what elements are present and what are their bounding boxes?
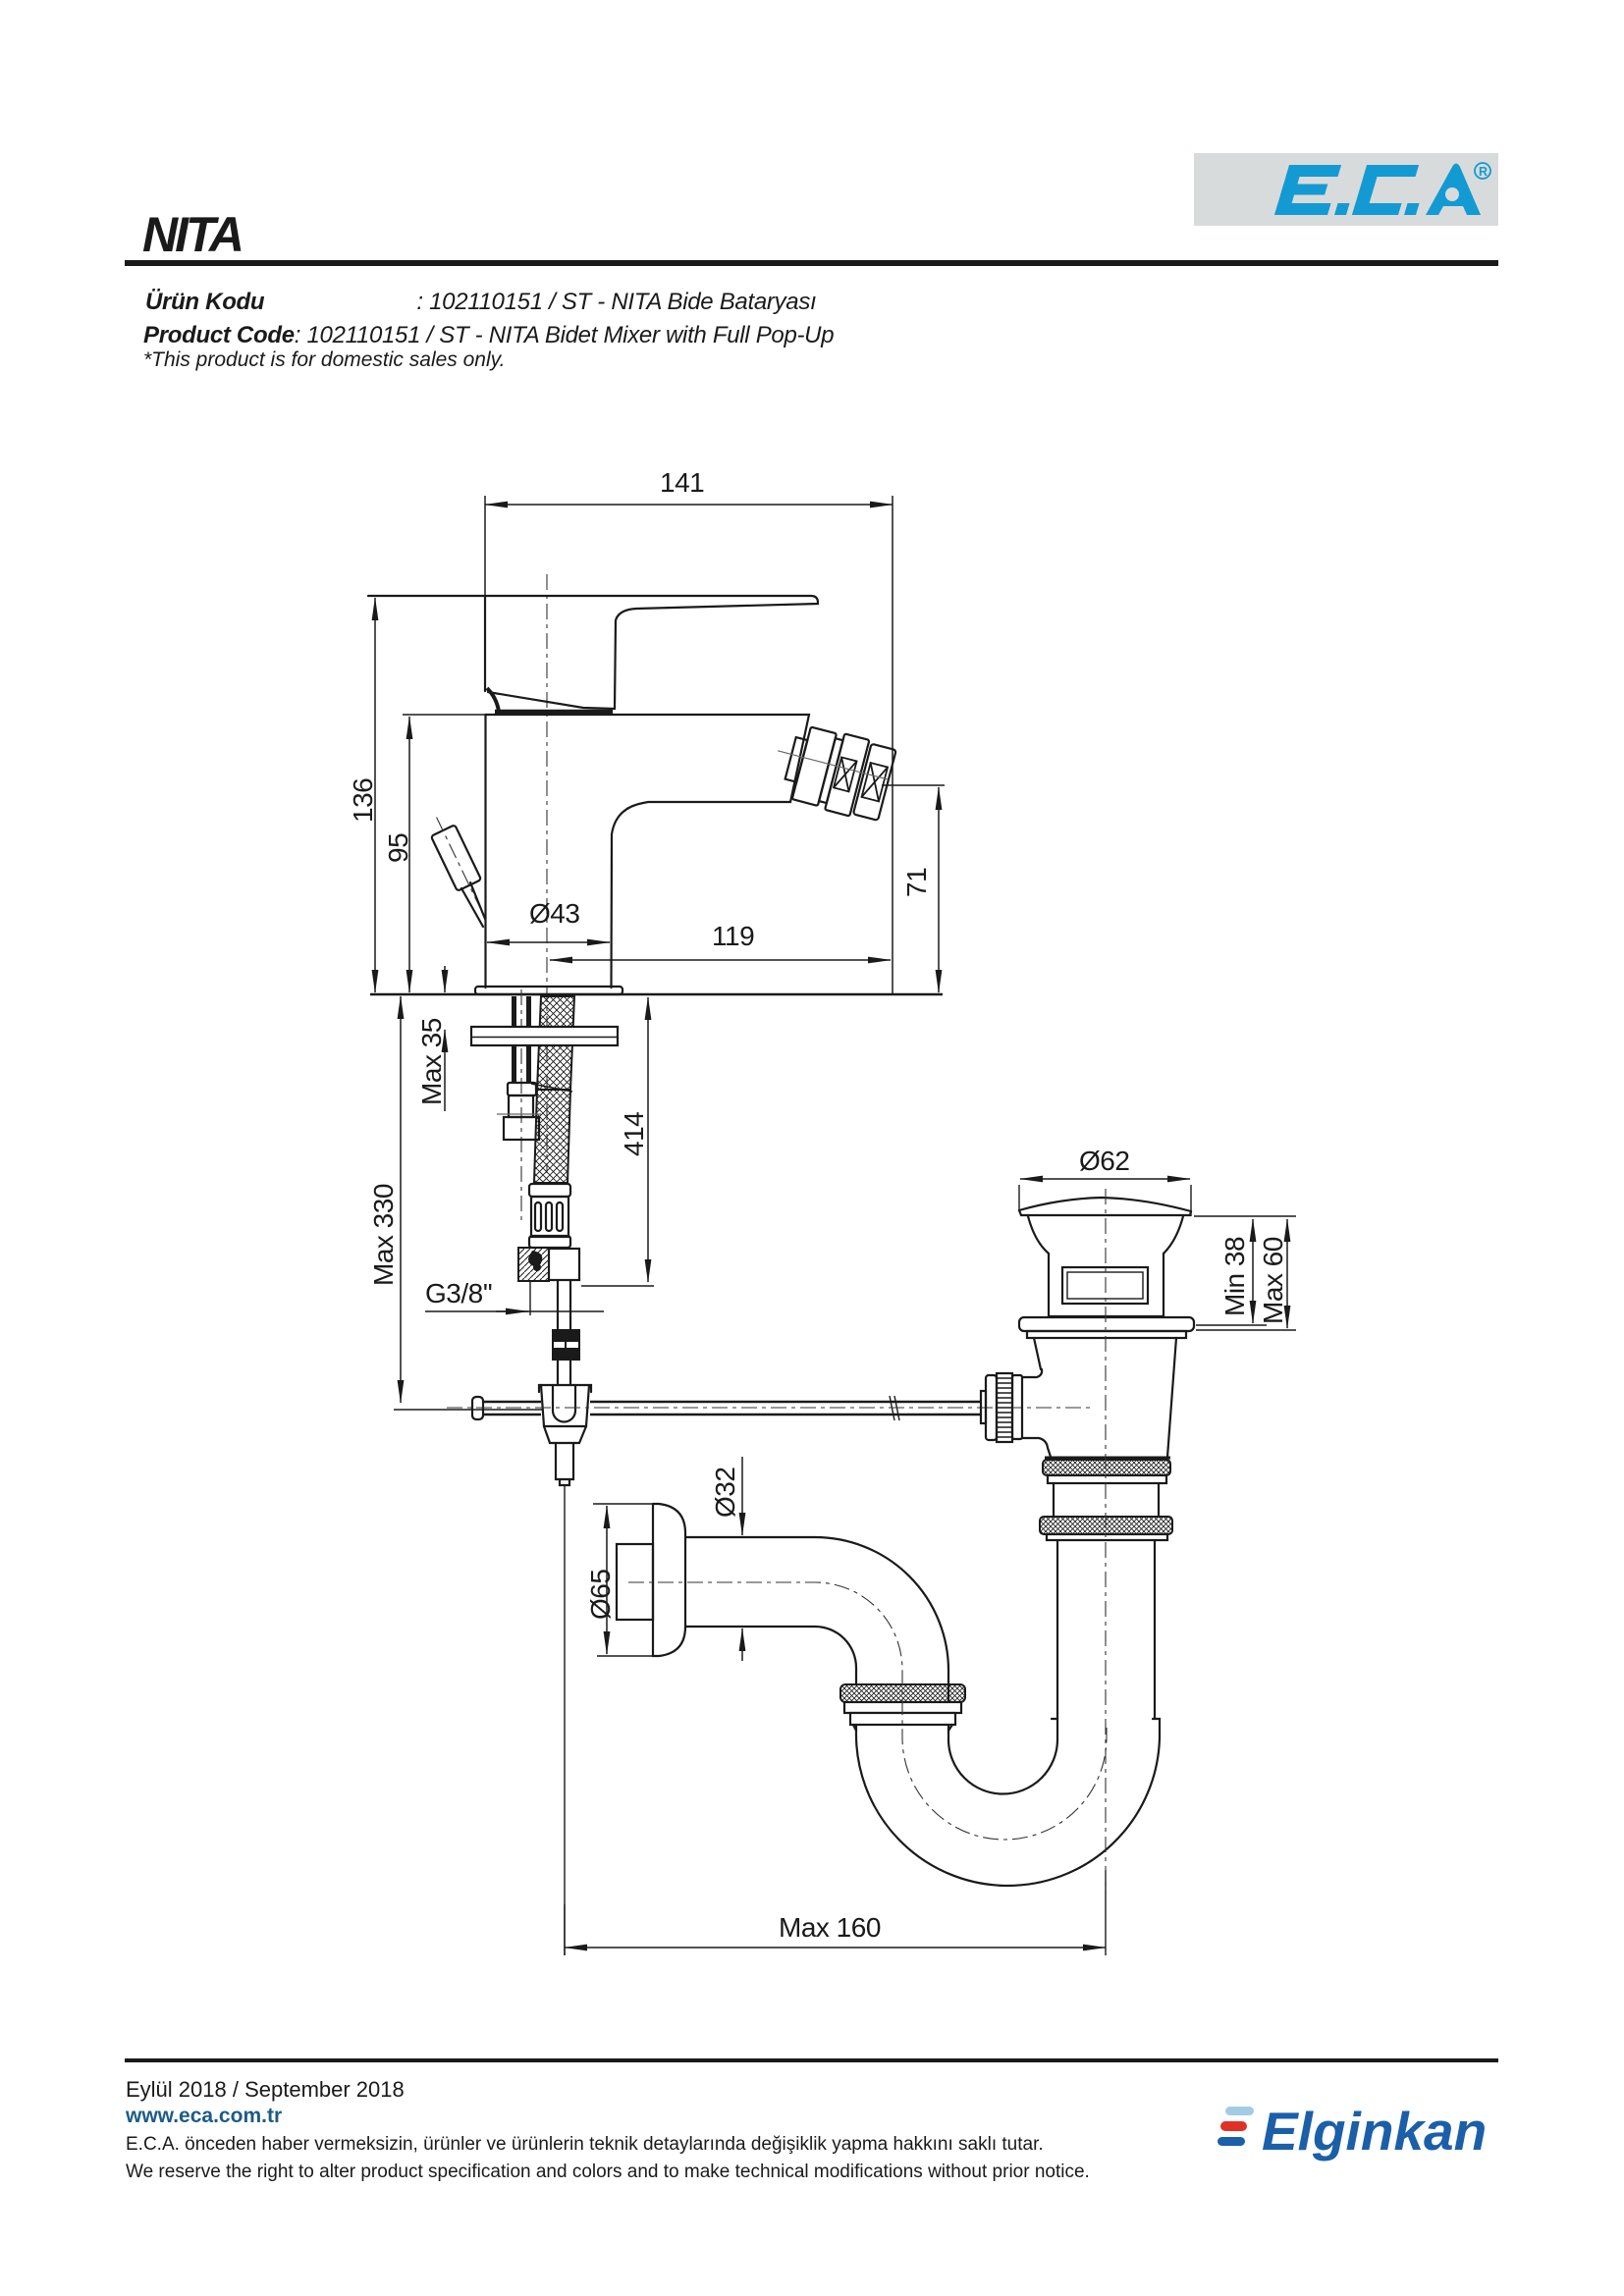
svg-text:Ø43: Ø43: [529, 898, 579, 929]
svg-text:NITA: NITA: [142, 207, 242, 262]
svg-text:G3/8'': G3/8'': [425, 1278, 492, 1308]
svg-text:Product Code: 102110151 / ST -: Product Code: 102110151 / ST - NITA Bide…: [143, 322, 834, 348]
svg-text:136: 136: [348, 778, 378, 823]
svg-text:119: 119: [712, 921, 754, 951]
svg-text:71: 71: [901, 868, 932, 897]
svg-text:Eylül 2018 / September 2018: Eylül 2018 / September 2018: [126, 2077, 405, 2102]
svg-text:Min 38: Min 38: [1219, 1237, 1250, 1316]
svg-text:Max 35: Max 35: [416, 1018, 447, 1105]
svg-text:www.eca.com.tr: www.eca.com.tr: [125, 2105, 282, 2127]
svg-text:E.C.A. önceden haber vermeksiz: E.C.A. önceden haber vermeksizin, ürünle…: [126, 2134, 1044, 2155]
svg-text:Max 160: Max 160: [779, 1912, 881, 1943]
svg-text:R: R: [1479, 165, 1488, 179]
svg-text:*This product is for domestic: *This product is for domestic sales only…: [143, 348, 505, 371]
svg-text:141: 141: [660, 467, 704, 498]
svg-text:414: 414: [619, 1112, 649, 1156]
svg-text:Ø65: Ø65: [585, 1570, 616, 1620]
svg-text:Max 330: Max 330: [368, 1184, 399, 1286]
svg-text:Ø32: Ø32: [710, 1468, 740, 1518]
svg-text:Elginkan: Elginkan: [1262, 2101, 1487, 2162]
svg-text:Ürün Kodu : 102110151 / ST - N: Ürün Kodu : 102110151 / ST - NITA Bide B…: [145, 289, 816, 315]
svg-text:Max 60: Max 60: [1258, 1237, 1288, 1324]
svg-text:Ø62: Ø62: [1079, 1146, 1129, 1176]
svg-text:We reserve the right to alter: We reserve the right to alter product sp…: [126, 2162, 1090, 2182]
